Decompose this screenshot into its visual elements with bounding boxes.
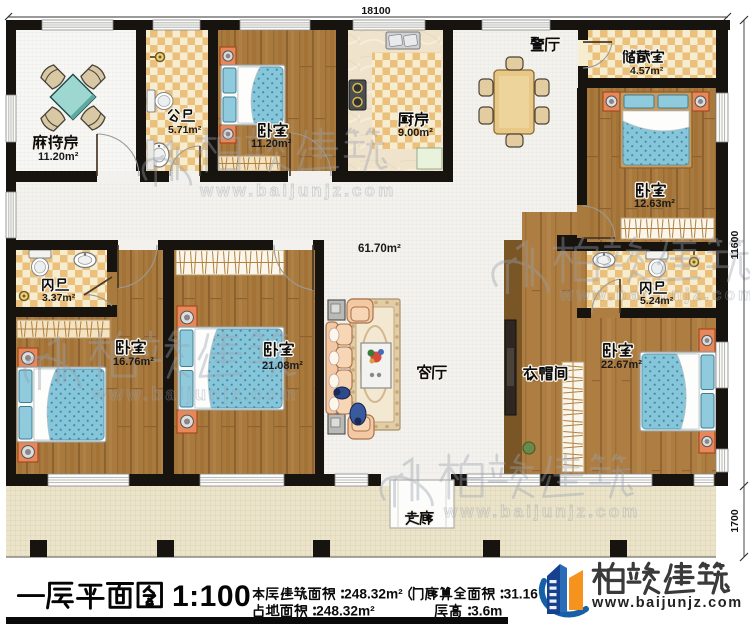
svg-text:18100: 18100 xyxy=(361,5,390,17)
svg-text:21.08m²: 21.08m² xyxy=(262,360,303,372)
svg-text:31.16: 31.16 xyxy=(504,586,539,601)
svg-text:9.00m²: 9.00m² xyxy=(398,127,433,139)
svg-text:3.37m²: 3.37m² xyxy=(42,292,76,304)
svg-text:www.baijunjz.com: www.baijunjz.com xyxy=(91,384,299,404)
svg-text:1:100: 1:100 xyxy=(172,580,251,613)
svg-text:3.6m: 3.6m xyxy=(471,603,502,618)
svg-text:www.baijunjz.com: www.baijunjz.com xyxy=(591,595,743,611)
svg-text:4.57m²: 4.57m² xyxy=(630,65,664,77)
svg-text:11.20m²: 11.20m² xyxy=(38,151,79,163)
svg-text:61.70m²: 61.70m² xyxy=(358,243,401,255)
svg-text:www.baijunjz.com: www.baijunjz.com xyxy=(443,502,640,521)
svg-text:5.71m²: 5.71m² xyxy=(168,124,202,136)
svg-text:11.20m²: 11.20m² xyxy=(251,138,292,150)
svg-text:22.67m²: 22.67m² xyxy=(601,359,642,371)
svg-text:11600: 11600 xyxy=(729,231,741,260)
svg-text:248.32m²: 248.32m² xyxy=(316,603,375,618)
svg-text:www.baijunjz.com: www.baijunjz.com xyxy=(199,181,396,200)
svg-text:248.32m²: 248.32m² xyxy=(344,586,403,601)
svg-text:16.76m²: 16.76m² xyxy=(113,356,154,368)
svg-text:1700: 1700 xyxy=(729,509,741,533)
svg-text:12.63m²: 12.63m² xyxy=(634,198,675,210)
svg-text:5.24m²: 5.24m² xyxy=(640,295,674,307)
